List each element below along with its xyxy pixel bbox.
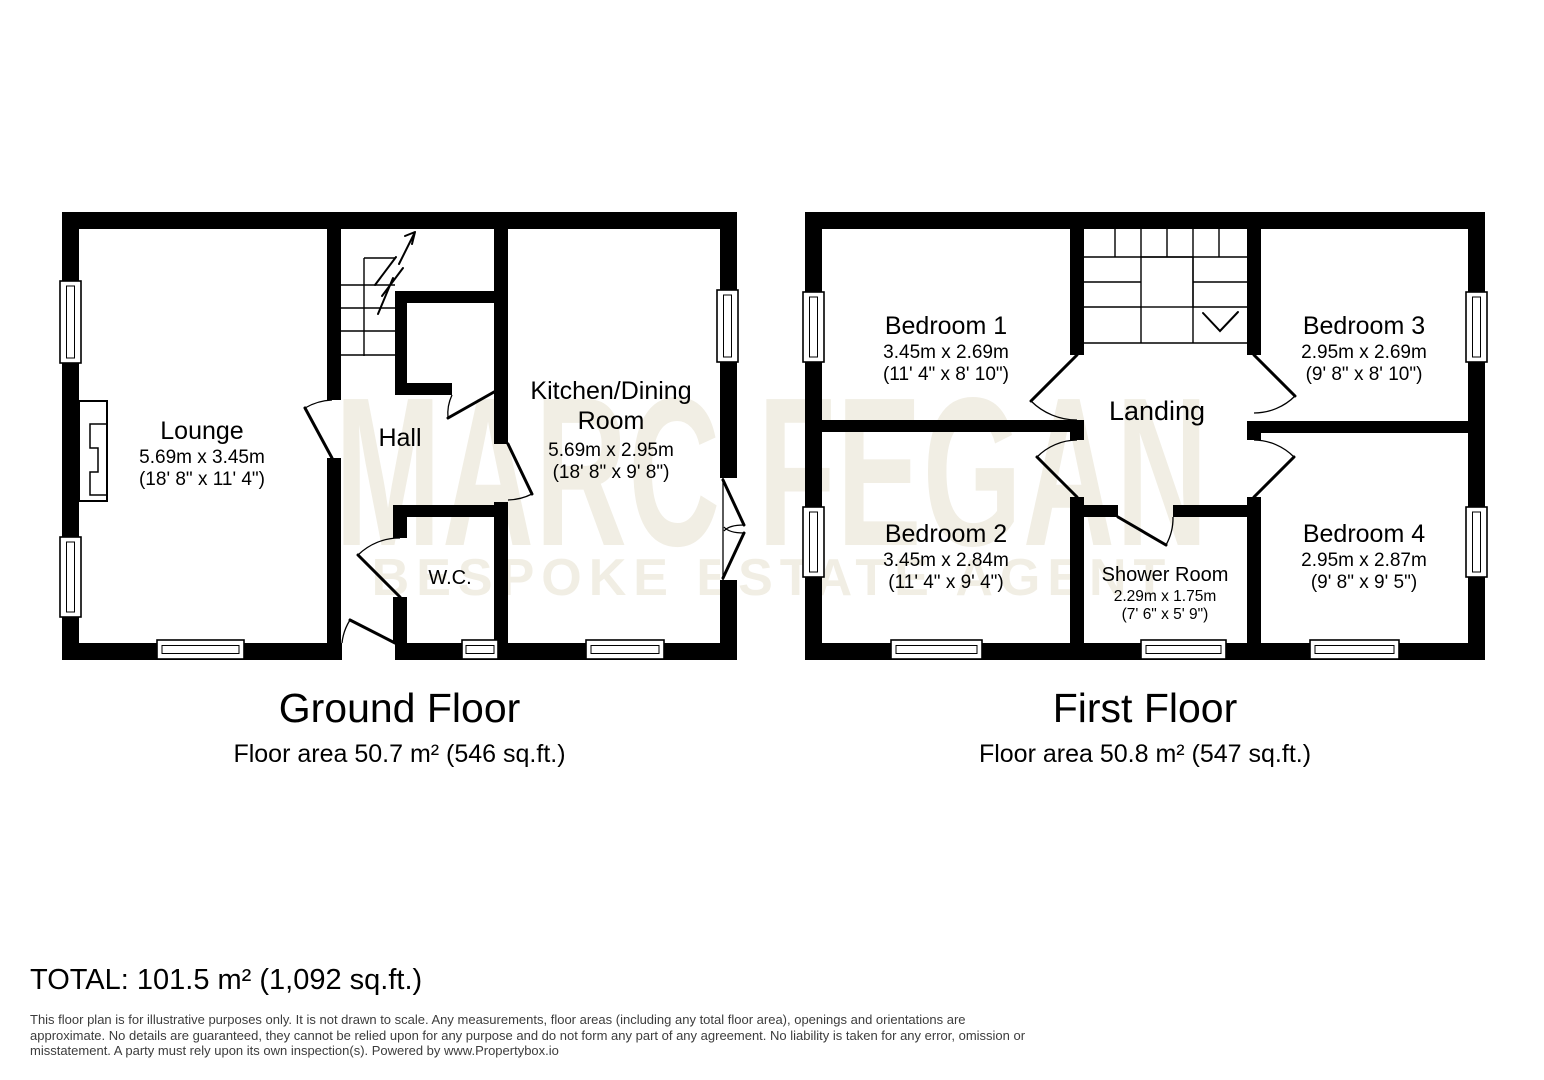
room-dims-imperial: (9' 8" x 9' 5") — [1253, 572, 1475, 594]
disclaimer-line1: This floor plan is for illustrative purp… — [30, 1012, 1025, 1028]
room-dims-metric: 3.45m x 2.84m — [835, 550, 1057, 572]
room-name: W.C. — [395, 567, 505, 591]
room-label-shower-room: Shower Room 2.29m x 1.75m (7' 6" x 5' 9"… — [1077, 564, 1253, 624]
first-floor-area: Floor area 50.8 m² (547 sq.ft.) — [805, 740, 1485, 769]
ground-floor-plan: Lounge 5.69m x 3.45m (18' 8" x 11' 4") H… — [62, 212, 737, 660]
room-name: Lounge — [82, 417, 322, 447]
window — [803, 292, 824, 362]
disclaimer-line2: approximate. No details are guaranteed, … — [30, 1028, 1025, 1044]
room-label-bedroom1: Bedroom 1 3.45m x 2.69m (11' 4" x 8' 10"… — [835, 312, 1057, 386]
window — [803, 507, 824, 577]
ground-floor-area: Floor area 50.7 m² (546 sq.ft.) — [62, 740, 737, 769]
bedroom4-door — [1254, 440, 1294, 497]
room-label-lounge: Lounge 5.69m x 3.45m (18' 8" x 11' 4") — [82, 417, 322, 491]
room-name: Hall — [341, 424, 459, 454]
room-name: Shower Room — [1077, 564, 1253, 588]
room-dims-metric: 5.69m x 3.45m — [82, 447, 322, 469]
window — [586, 640, 664, 659]
room-label-wc: W.C. — [395, 567, 505, 591]
room-dims-metric: 2.95m x 2.69m — [1253, 342, 1475, 364]
disclaimer: This floor plan is for illustrative purp… — [30, 1012, 1025, 1059]
ground-floor-caption: Ground Floor Floor area 50.7 m² (546 sq.… — [62, 686, 737, 769]
room-name: Bedroom 3 — [1253, 312, 1475, 342]
window — [717, 290, 738, 362]
first-floor-plan: Bedroom 1 3.45m x 2.69m (11' 4" x 8' 10"… — [805, 212, 1485, 660]
window — [60, 537, 81, 617]
room-dims-metric: 3.45m x 2.69m — [835, 342, 1057, 364]
window — [157, 640, 244, 659]
front-door — [342, 620, 395, 643]
room-name: Room — [496, 407, 726, 437]
room-name: Bedroom 1 — [835, 312, 1057, 342]
room-name: Kitchen/Dining — [496, 377, 726, 407]
room-label-bedroom2: Bedroom 2 3.45m x 2.84m (11' 4" x 9' 4") — [835, 520, 1057, 594]
room-dims-imperial: (7' 6" x 5' 9") — [1077, 606, 1253, 624]
bedroom2-door — [1037, 440, 1077, 497]
disclaimer-line3: misstatement. A party must rely upon its… — [30, 1043, 1025, 1059]
first-floor-caption: First Floor Floor area 50.8 m² (547 sq.f… — [805, 686, 1485, 769]
first-floor-title: First Floor — [805, 686, 1485, 731]
room-dims-imperial: (11' 4" x 8' 10") — [835, 364, 1057, 386]
room-dims-imperial: (18' 8" x 11' 4") — [82, 469, 322, 491]
room-dims-metric: 5.69m x 2.95m — [496, 440, 726, 462]
room-label-bedroom4: Bedroom 4 2.95m x 2.87m (9' 8" x 9' 5") — [1253, 520, 1475, 594]
room-dims-imperial: (11' 4" x 9' 4") — [835, 572, 1057, 594]
closet-door — [448, 392, 494, 418]
stairs-down-arrow — [1203, 312, 1238, 331]
room-name: Landing — [1067, 396, 1247, 428]
floorplan-page: MARC FEGAN BESPOKE ESTATE AGENT — [0, 0, 1544, 1080]
room-label-hall: Hall — [341, 424, 459, 454]
total-area: TOTAL: 101.5 m² (1,092 sq.ft.) — [30, 964, 422, 997]
room-dims-metric: 2.29m x 1.75m — [1077, 588, 1253, 606]
room-dims-metric: 2.95m x 2.87m — [1253, 550, 1475, 572]
room-label-landing: Landing — [1067, 396, 1247, 428]
window — [462, 640, 498, 659]
room-label-kitchen: Kitchen/Dining Room 5.69m x 2.95m (18' 8… — [496, 377, 726, 485]
shower-door — [1118, 517, 1173, 545]
window — [60, 281, 81, 363]
window — [1141, 640, 1226, 659]
ground-floor-title: Ground Floor — [62, 686, 737, 731]
window — [891, 640, 982, 659]
wc-door — [358, 538, 400, 597]
room-name: Bedroom 4 — [1253, 520, 1475, 550]
room-dims-imperial: (9' 8" x 8' 10") — [1253, 364, 1475, 386]
room-name: Bedroom 2 — [835, 520, 1057, 550]
first-stairs — [1084, 229, 1247, 343]
room-dims-imperial: (18' 8" x 9' 8") — [496, 462, 726, 484]
window — [1310, 640, 1399, 659]
room-label-bedroom3: Bedroom 3 2.95m x 2.69m (9' 8" x 8' 10") — [1253, 312, 1475, 386]
